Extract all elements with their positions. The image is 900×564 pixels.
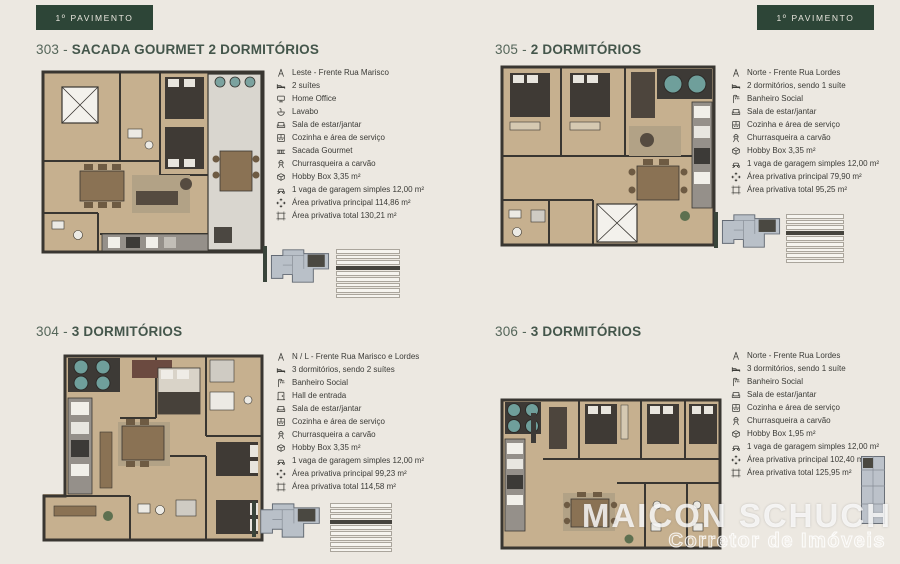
- floor-stack-row: [336, 255, 400, 260]
- kitchen-icon: [731, 120, 741, 130]
- kitchen-icon: [276, 133, 286, 143]
- feature-text: N / L - Frente Rua Marisco e Lordes: [292, 352, 419, 361]
- sofa-icon: [276, 404, 286, 414]
- feature-text: 2 dormitórios, sendo 1 suíte: [747, 81, 846, 90]
- floor-plan-304: [38, 348, 268, 549]
- bed-icon: [276, 81, 286, 91]
- floor-stack-row: [786, 225, 844, 230]
- unit-number: 304 -: [36, 324, 72, 339]
- feature-item: Banheiro Social: [276, 376, 424, 389]
- feature-text: Norte - Frente Rua Lordes: [747, 351, 840, 360]
- feature-text: 2 suítes: [292, 81, 320, 90]
- floor-stack-row: [330, 509, 392, 514]
- floor-stack-row: [786, 253, 844, 258]
- feature-text: Hall de entrada: [292, 391, 346, 400]
- floor-stack-row: [336, 283, 400, 288]
- feature-item: Área privativa total 114,58 m²: [276, 480, 424, 493]
- feature-text: Área privativa principal 114,86 m²: [292, 198, 411, 207]
- unit-name: 2 DORMITÓRIOS: [531, 42, 642, 57]
- unit-name: 3 DORMITÓRIOS: [531, 324, 642, 339]
- sink-icon: [276, 107, 286, 117]
- sofa-icon: [731, 107, 741, 117]
- feature-text: Cozinha e área de serviço: [747, 403, 840, 412]
- floor-plan-305: [497, 60, 719, 252]
- key-plan-tab-304: [252, 501, 256, 537]
- car-icon: [731, 159, 741, 169]
- unit-303-features: Leste - Frente Rua Marisco2 suítesHome O…: [276, 66, 424, 222]
- feature-item: Área privativa total 95,25 m²: [731, 183, 879, 196]
- key-plan-305: [720, 211, 782, 251]
- feature-item: Leste - Frente Rua Marisco: [276, 66, 424, 79]
- floor-stack-row: [336, 260, 400, 265]
- floor-stack-304: [330, 503, 392, 552]
- floor-stack-row: [330, 531, 392, 536]
- box-icon: [731, 146, 741, 156]
- feature-item: 2 dormitórios, sendo 1 suíte: [731, 79, 879, 92]
- feature-text: Cozinha e área de serviço: [292, 133, 385, 142]
- car-icon: [276, 456, 286, 466]
- area-icon: [731, 185, 741, 195]
- broker-name: MAICON SCHUCH: [582, 499, 892, 532]
- box-icon: [276, 443, 286, 453]
- feature-item: Cozinha e área de serviço: [731, 401, 879, 414]
- feature-text: Área privativa principal 99,23 m²: [292, 469, 407, 478]
- unit-number: 305 -: [495, 42, 531, 57]
- broker-subtitle: Corretor de Imóveis: [582, 531, 886, 551]
- feature-text: 1 vaga de garagem simples 12,00 m²: [747, 159, 879, 168]
- feature-text: Área privativa total 130,21 m²: [292, 211, 397, 220]
- shower-icon: [731, 377, 741, 387]
- feature-text: Área privativa total 95,25 m²: [747, 185, 847, 194]
- compass-icon: [731, 68, 741, 78]
- floor-stack-row: [330, 525, 392, 530]
- unit-name: 3 DORMITÓRIOS: [72, 324, 183, 339]
- feature-item: Sala de estar/jantar: [276, 118, 424, 131]
- grill-icon: [731, 416, 741, 426]
- feature-item: Área privativa total 130,21 m²: [276, 209, 424, 222]
- unit-305-features: Norte - Frente Rua Lordes2 dormitórios, …: [731, 66, 879, 196]
- feature-text: Banheiro Social: [747, 94, 803, 103]
- feature-text: Sala de estar/jantar: [747, 107, 816, 116]
- feature-item: Área privativa principal 114,86 m²: [276, 196, 424, 209]
- feature-text: Banheiro Social: [747, 377, 803, 386]
- feature-item: Lavabo: [276, 105, 424, 118]
- unit-306-title: 306 - 3 DORMITÓRIOS: [495, 324, 641, 339]
- feature-item: Churrasqueira a carvão: [731, 414, 879, 427]
- floor-stack-303: [336, 249, 400, 298]
- kitchen-icon: [731, 403, 741, 413]
- floor-stack-row-current: [336, 266, 400, 271]
- feature-item: Sala de estar/jantar: [731, 105, 879, 118]
- feature-item: Banheiro Social: [731, 375, 879, 388]
- floor-badge-left: 1º PAVIMENTO: [36, 5, 153, 30]
- floor-stack-row: [336, 294, 400, 299]
- grill-icon: [276, 159, 286, 169]
- unit-304-features: N / L - Frente Rua Marisco e Lordes3 dor…: [276, 350, 424, 493]
- shower-icon: [731, 94, 741, 104]
- feature-item: 1 vaga de garagem simples 12,00 m²: [731, 440, 879, 453]
- feature-item: Área privativa total 125,95 m²: [731, 466, 879, 479]
- feature-text: Cozinha e área de serviço: [292, 417, 385, 426]
- feature-item: Cozinha e área de serviço: [276, 131, 424, 144]
- feature-text: Cozinha e área de serviço: [747, 120, 840, 129]
- feature-item: Área privativa principal 79,90 m²: [731, 170, 879, 183]
- floor-stack-row: [336, 271, 400, 276]
- feature-item: 3 dormitórios, sendo 1 suíte: [731, 362, 879, 375]
- feature-text: 3 dormitórios, sendo 2 suítes: [292, 365, 395, 374]
- area-icon: [731, 468, 741, 478]
- feature-text: Sala de estar/jantar: [292, 120, 361, 129]
- floor-badge-label: 1º PAVIMENTO: [776, 13, 854, 23]
- feature-item: Sala de estar/jantar: [276, 402, 424, 415]
- feature-text: Hobby Box 1,95 m²: [747, 429, 815, 438]
- feature-item: Hobby Box 3,35 m²: [731, 144, 879, 157]
- car-icon: [731, 442, 741, 452]
- feature-text: 1 vaga de garagem simples 12,00 m²: [292, 456, 424, 465]
- grill-icon: [731, 133, 741, 143]
- feature-item: N / L - Frente Rua Marisco e Lordes: [276, 350, 424, 363]
- unit-number: 306 -: [495, 324, 531, 339]
- feature-text: Hobby Box 3,35 m²: [292, 443, 360, 452]
- shower-icon: [276, 378, 286, 388]
- expand-icon: [276, 469, 286, 479]
- feature-text: Área privativa principal 102,40 m²: [747, 455, 866, 464]
- feature-item: 1 vaga de garagem simples 12,00 m²: [276, 183, 424, 196]
- bed-icon: [276, 365, 286, 375]
- brochure-page: 1º PAVIMENTO 1º PAVIMENTO 303 - SACADA G…: [0, 0, 900, 564]
- feature-item: 3 dormitórios, sendo 2 suítes: [276, 363, 424, 376]
- feature-item: 2 suítes: [276, 79, 424, 92]
- feature-item: Área privativa principal 99,23 m²: [276, 467, 424, 480]
- floor-plan-303: [38, 63, 268, 262]
- sofa-icon: [276, 120, 286, 130]
- feature-item: Sala de estar/jantar: [731, 388, 879, 401]
- feature-item: Norte - Frente Rua Lordes: [731, 66, 879, 79]
- car-icon: [276, 185, 286, 195]
- floor-stack-row: [330, 503, 392, 508]
- feature-item: Área privativa principal 102,40 m²: [731, 453, 879, 466]
- bed-icon: [731, 81, 741, 91]
- feature-text: Área privativa principal 79,90 m²: [747, 172, 862, 181]
- feature-item: Cozinha e área de serviço: [731, 118, 879, 131]
- box-icon: [731, 429, 741, 439]
- unit-303-title: 303 - SACADA GOURMET 2 DORMITÓRIOS: [36, 42, 319, 57]
- feature-text: Sala de estar/jantar: [747, 390, 816, 399]
- feature-text: Churrasqueira a carvão: [292, 430, 376, 439]
- feature-item: Churrasqueira a carvão: [276, 157, 424, 170]
- floor-stack-row: [330, 548, 392, 553]
- feature-item: Churrasqueira a carvão: [276, 428, 424, 441]
- feature-text: Churrasqueira a carvão: [292, 159, 376, 168]
- floor-stack-row: [786, 259, 844, 264]
- desk-icon: [276, 94, 286, 104]
- feature-item: Cozinha e área de serviço: [276, 415, 424, 428]
- balcony-icon: [276, 146, 286, 156]
- expand-icon: [276, 198, 286, 208]
- feature-text: 1 vaga de garagem simples 12,00 m²: [747, 442, 879, 451]
- feature-text: Hobby Box 3,35 m²: [292, 172, 360, 181]
- feature-item: 1 vaga de garagem simples 12,00 m²: [276, 454, 424, 467]
- floor-stack-305: [786, 214, 844, 263]
- feature-text: 3 dormitórios, sendo 1 suíte: [747, 364, 846, 373]
- expand-icon: [731, 172, 741, 182]
- sofa-icon: [731, 390, 741, 400]
- feature-item: Home Office: [276, 92, 424, 105]
- floor-stack-row: [786, 242, 844, 247]
- feature-text: Norte - Frente Rua Lordes: [747, 68, 840, 77]
- feature-item: Hall de entrada: [276, 389, 424, 402]
- compass-icon: [276, 68, 286, 78]
- feature-item: Hobby Box 3,35 m²: [276, 170, 424, 183]
- feature-text: Área privativa total 125,95 m²: [747, 468, 852, 477]
- feature-item: Banheiro Social: [731, 92, 879, 105]
- floor-stack-row-current: [786, 231, 844, 236]
- unit-name: SACADA GOURMET 2 DORMITÓRIOS: [72, 42, 319, 57]
- feature-text: Sala de estar/jantar: [292, 404, 361, 413]
- feature-text: Churrasqueira a carvão: [747, 416, 831, 425]
- key-plan-304: [258, 500, 322, 541]
- floor-stack-row: [786, 236, 844, 241]
- floor-stack-row: [786, 220, 844, 225]
- floor-stack-row: [786, 214, 844, 219]
- unit-number: 303 -: [36, 42, 72, 57]
- unit-306-features: Norte - Frente Rua Lordes3 dormitórios, …: [731, 349, 879, 479]
- expand-icon: [731, 455, 741, 465]
- kitchen-icon: [276, 417, 286, 427]
- unit-305-title: 305 - 2 DORMITÓRIOS: [495, 42, 641, 57]
- area-icon: [276, 482, 286, 492]
- feature-text: Churrasqueira a carvão: [747, 133, 831, 142]
- area-icon: [276, 211, 286, 221]
- floor-badge-right: 1º PAVIMENTO: [757, 5, 874, 30]
- feature-item: 1 vaga de garagem simples 12,00 m²: [731, 157, 879, 170]
- feature-item: Norte - Frente Rua Lordes: [731, 349, 879, 362]
- floor-stack-row: [330, 537, 392, 542]
- feature-text: 1 vaga de garagem simples 12,00 m²: [292, 185, 424, 194]
- feature-item: Churrasqueira a carvão: [731, 131, 879, 144]
- floor-badge-label: 1º PAVIMENTO: [55, 13, 133, 23]
- feature-text: Lavabo: [292, 107, 318, 116]
- feature-text: Hobby Box 3,35 m²: [747, 146, 815, 155]
- bed-icon: [731, 364, 741, 374]
- feature-text: Área privativa total 114,58 m²: [292, 482, 396, 491]
- door-icon: [276, 391, 286, 401]
- key-plan-tab-303: [263, 246, 267, 282]
- key-plan-303: [269, 246, 331, 286]
- floor-stack-row: [336, 277, 400, 282]
- feature-text: Banheiro Social: [292, 378, 348, 387]
- feature-text: Sacada Gourmet: [292, 146, 352, 155]
- key-plan-tab-305: [714, 212, 718, 248]
- compass-icon: [276, 352, 286, 362]
- floor-stack-row-current: [330, 520, 392, 525]
- floor-stack-row: [330, 514, 392, 519]
- feature-text: Home Office: [292, 94, 336, 103]
- box-icon: [276, 172, 286, 182]
- floor-stack-row: [336, 288, 400, 293]
- floor-stack-row: [786, 248, 844, 253]
- compass-icon: [731, 351, 741, 361]
- broker-watermark: MAICON SCHUCH Corretor de Imóveis: [582, 499, 892, 551]
- floor-stack-row: [336, 249, 400, 254]
- feature-item: Sacada Gourmet: [276, 144, 424, 157]
- unit-304-title: 304 - 3 DORMITÓRIOS: [36, 324, 182, 339]
- feature-item: Hobby Box 3,35 m²: [276, 441, 424, 454]
- floor-stack-row: [330, 542, 392, 547]
- grill-icon: [276, 430, 286, 440]
- feature-text: Leste - Frente Rua Marisco: [292, 68, 389, 77]
- feature-item: Hobby Box 1,95 m²: [731, 427, 879, 440]
